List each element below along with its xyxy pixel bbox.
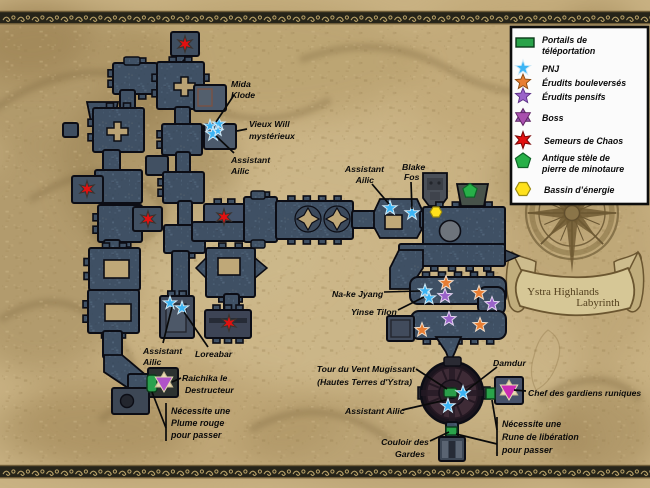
svg-text:Damdur: Damdur xyxy=(493,358,526,368)
svg-text:Tour du Vent Mugissant: Tour du Vent Mugissant xyxy=(317,364,416,374)
svg-text:Nécessite une: Nécessite une xyxy=(171,406,230,416)
svg-text:Boss: Boss xyxy=(542,113,564,123)
svg-text:Ailic: Ailic xyxy=(142,357,162,367)
svg-text:Ailic: Ailic xyxy=(355,175,375,185)
svg-text:Gardes: Gardes xyxy=(395,449,425,459)
svg-text:Assistant: Assistant xyxy=(142,346,183,356)
svg-text:téléportation: téléportation xyxy=(542,46,595,56)
svg-text:Assistant: Assistant xyxy=(230,155,271,165)
svg-text:Rune de libération: Rune de libération xyxy=(502,432,579,442)
svg-text:Mida: Mida xyxy=(231,79,251,89)
svg-text:(Hautes Terres d'Ystra): (Hautes Terres d'Ystra) xyxy=(317,377,412,387)
svg-text:mystérieux: mystérieux xyxy=(249,131,296,141)
svg-text:Antique stèle de: Antique stèle de xyxy=(541,153,610,163)
svg-text:pierre de minotaure: pierre de minotaure xyxy=(541,164,624,174)
svg-text:Plume rouge: Plume rouge xyxy=(171,418,224,428)
svg-text:Couloir des: Couloir des xyxy=(381,437,429,447)
svg-text:Assistant Ailic: Assistant Ailic xyxy=(344,406,405,416)
svg-text:Raichika le: Raichika le xyxy=(182,373,228,383)
svg-text:Loreabar: Loreabar xyxy=(195,349,233,359)
svg-text:Labyrinth: Labyrinth xyxy=(576,297,620,309)
svg-text:pour passer: pour passer xyxy=(170,430,222,440)
svg-text:Semeurs de Chaos: Semeurs de Chaos xyxy=(544,136,623,146)
svg-text:PNJ: PNJ xyxy=(542,64,560,74)
svg-text:Destructeur: Destructeur xyxy=(185,385,234,395)
svg-text:Nécessite une: Nécessite une xyxy=(502,419,561,429)
svg-text:Yinse Tilon: Yinse Tilon xyxy=(351,307,397,317)
svg-text:Fos: Fos xyxy=(404,172,420,182)
svg-text:Assistant: Assistant xyxy=(344,164,385,174)
svg-text:Chef des gardiens runiques: Chef des gardiens runiques xyxy=(528,388,641,398)
svg-text:Na-ke Jyang: Na-ke Jyang xyxy=(332,289,384,299)
svg-text:Vieux Will: Vieux Will xyxy=(249,119,290,129)
svg-text:Bassin d’énergie: Bassin d’énergie xyxy=(544,185,615,195)
svg-text:Blake: Blake xyxy=(402,162,425,172)
svg-text:Érudits pensifs: Érudits pensifs xyxy=(542,92,606,102)
svg-text:pour passer: pour passer xyxy=(501,445,553,455)
svg-text:Ailic: Ailic xyxy=(230,166,250,176)
svg-text:Érudits bouleversés: Érudits bouleversés xyxy=(542,78,626,88)
svg-text:Portails de: Portails de xyxy=(542,35,587,45)
svg-text:Klode: Klode xyxy=(231,90,255,100)
